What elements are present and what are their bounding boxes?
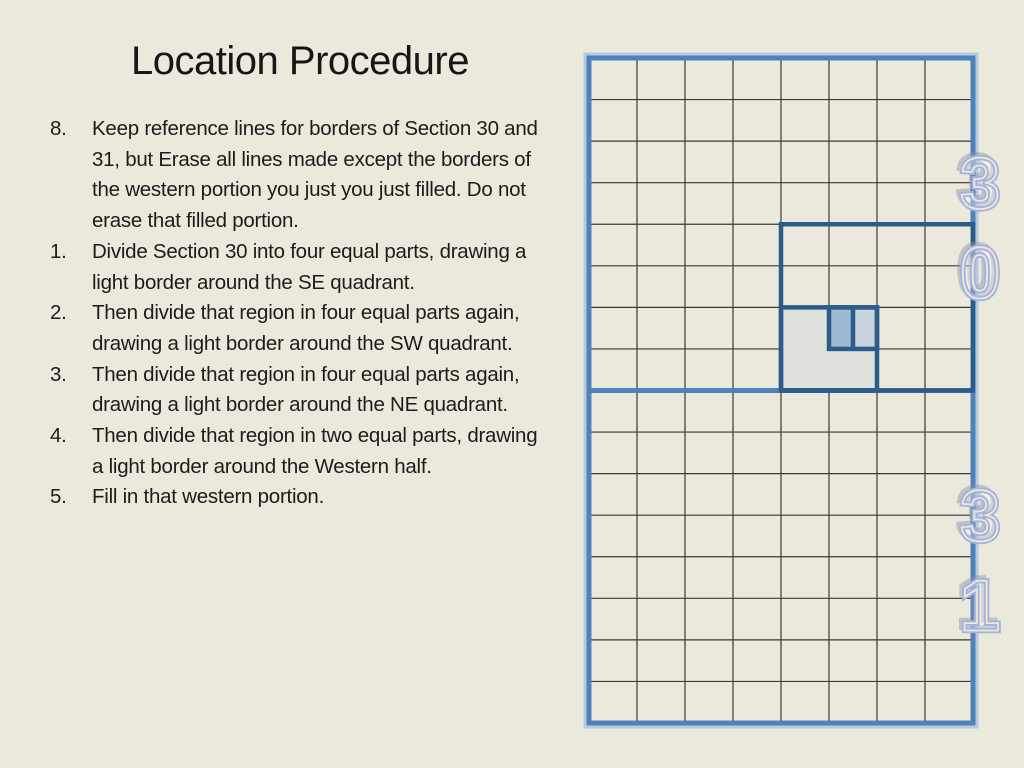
slide: { "slide": { "background_color": "#ebe8d… (0, 0, 1024, 768)
list-item: 1. Divide Section 30 into four equal par… (50, 237, 550, 298)
section-label-digit: 3 (960, 477, 1000, 557)
list-item-text: Then divide that region in two equal par… (92, 421, 544, 482)
slide-canvas: Location Procedure 8. Keep reference lin… (0, 0, 1024, 768)
list-item: 2. Then divide that region in four equal… (50, 298, 550, 359)
list-item-text: Then divide that region in four equal pa… (92, 360, 544, 421)
list-item-text: Fill in that western portion. (92, 482, 544, 513)
list-item: 8. Keep reference lines for borders of S… (50, 114, 550, 237)
list-item-text: Then divide that region in four equal pa… (92, 298, 544, 359)
western-half-fill (829, 307, 853, 349)
list-item-number: 2. (50, 298, 92, 359)
list-item: 5. Fill in that western portion. (50, 482, 550, 513)
slide-title: Location Procedure (50, 38, 550, 84)
procedure-list: 8. Keep reference lines for borders of S… (50, 114, 550, 513)
list-item-number: 3. (50, 360, 92, 421)
list-item-number: 4. (50, 421, 92, 482)
sections-diagram: 3333000033331111 (560, 0, 1024, 768)
eastern-half-fill (853, 307, 877, 349)
list-item-text: Divide Section 30 into four equal parts,… (92, 237, 544, 298)
list-item-number: 5. (50, 482, 92, 513)
list-item: 3. Then divide that region in four equal… (50, 360, 550, 421)
section-label-digit: 3 (960, 144, 1000, 224)
list-item-text: Keep reference lines for borders of Sect… (92, 114, 544, 237)
section-label-digit: 1 (960, 567, 1000, 647)
list-item-number: 8. (50, 114, 92, 237)
list-item: 4. Then divide that region in two equal … (50, 421, 550, 482)
section-label-digit: 0 (960, 234, 1000, 314)
content-column: Location Procedure 8. Keep reference lin… (50, 38, 550, 513)
list-item-number: 1. (50, 237, 92, 298)
